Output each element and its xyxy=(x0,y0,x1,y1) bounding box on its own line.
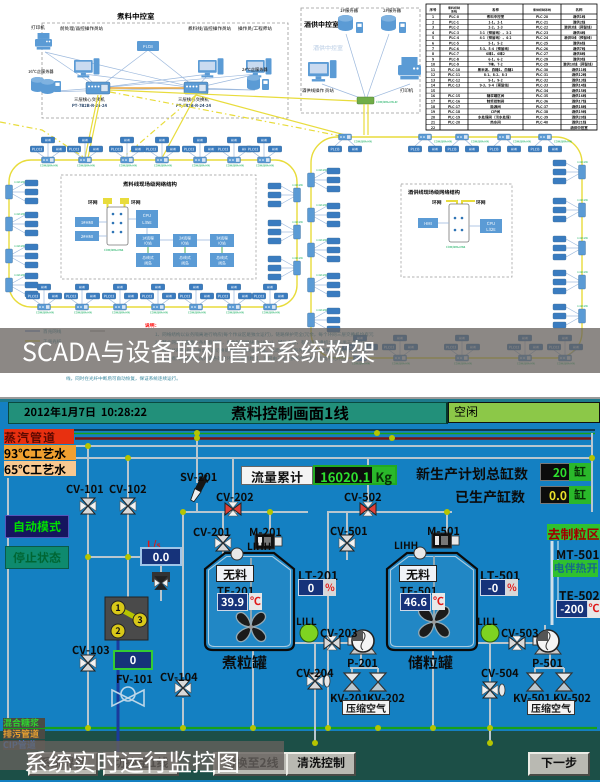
svg-text:1#服务器: 1#服务器 xyxy=(340,8,359,14)
svg-text:22: 22 xyxy=(431,126,435,131)
svg-text:COM-MN: COM-MN xyxy=(14,212,25,216)
svg-text:1#HMI: 1#HMI xyxy=(81,220,93,226)
svg-text:16℃企服务器: 16℃企服务器 xyxy=(28,69,54,75)
svg-text:总线式: 总线式 xyxy=(179,255,191,261)
svg-text:酒供20线: 酒供20线 xyxy=(572,115,587,120)
svg-text:19: 19 xyxy=(431,110,435,115)
svg-text:6味1、6味2: 6味1、6味2 xyxy=(486,52,505,57)
svg-text:IO站: IO站 xyxy=(218,241,226,247)
svg-text:PLC-11: PLC-11 xyxy=(448,73,460,78)
svg-text:线，同时在光纤中断后可自动恢复，保证系统连续运行。: 线，同时在光纤中断后可自动恢复，保证系统连续运行。 xyxy=(66,376,181,382)
svg-text:COM/BRA-MN: COM/BRA-MN xyxy=(226,311,244,315)
svg-text:酒供中控室: 酒供中控室 xyxy=(313,43,343,52)
svg-text:酒供线现场级网络结构: 酒供线现场级网络结构 xyxy=(408,189,460,196)
svg-text:HMI: HMI xyxy=(231,286,238,291)
svg-text:HMI: HMI xyxy=(159,139,166,144)
svg-text:PLCB: PLCB xyxy=(411,148,421,153)
svg-text:PLC-8: PLC-8 xyxy=(449,57,459,62)
svg-text:PLC-27: PLC-27 xyxy=(536,52,548,57)
svg-text:PLCB: PLCB xyxy=(490,148,500,153)
svg-text:HMI: HMI xyxy=(432,148,439,153)
svg-text:PT-7B2B-R-24-24: PT-7B2B-R-24-24 xyxy=(72,103,108,109)
svg-text:PLC-28: PLC-28 xyxy=(536,57,548,62)
svg-text:PLC-25: PLC-25 xyxy=(536,42,548,47)
svg-text:HMI: HMI xyxy=(424,221,432,227)
svg-text:PLC-7: PLC-7 xyxy=(449,52,459,57)
svg-text:21: 21 xyxy=(431,121,435,126)
svg-text:16: 16 xyxy=(431,94,435,99)
svg-text:PLC03: PLC03 xyxy=(66,295,77,300)
svg-text:COM-MN: COM-MN xyxy=(577,304,588,308)
svg-text:8-1、8-2、8-3: 8-1、8-2、8-3 xyxy=(484,73,507,78)
svg-text:HMI: HMI xyxy=(52,295,59,300)
svg-text:酒供5线（预留线）: 酒供5线（预留线） xyxy=(564,36,594,41)
svg-text:PLCB: PLCB xyxy=(448,148,458,153)
svg-text:环网: 环网 xyxy=(432,199,442,206)
svg-text:PLC-0: PLC-0 xyxy=(449,15,459,20)
svg-text:COM-MN: COM-MN xyxy=(292,183,303,187)
svg-text:PLC03: PLC03 xyxy=(104,295,115,300)
svg-text:名称: 名称 xyxy=(576,8,584,13)
svg-text:PLC-9: PLC-9 xyxy=(449,63,459,68)
svg-text:HMI: HMI xyxy=(82,139,89,144)
svg-text:COM/BRA-MN: COM/BRA-MN xyxy=(226,164,244,168)
svg-text:COM/BRA-MN: COM/BRA-MN xyxy=(256,164,274,168)
svg-text:1-1、2-1: 1-1、2-1 xyxy=(488,20,502,25)
svg-text:L35E: L35E xyxy=(142,220,152,226)
svg-text:3: 3 xyxy=(432,26,434,31)
svg-text:煮料中控室: 煮料中控室 xyxy=(117,11,155,22)
svg-text:HMI: HMI xyxy=(511,148,518,153)
svg-text:COM-MN: COM-MN xyxy=(577,198,588,202)
svg-text:2#HMI: 2#HMI xyxy=(81,234,93,240)
svg-text:COM-MN: COM-MN xyxy=(577,270,588,274)
svg-text:阀岛: 阀岛 xyxy=(181,261,189,267)
svg-text:煮料线/品控操作员站: 煮料线/品控操作员站 xyxy=(188,26,232,32)
svg-text:9: 9 xyxy=(432,57,434,62)
svg-text:COM-MN: COM-MN xyxy=(316,168,327,172)
svg-text:COM/BRA-MN: COM/BRA-MN xyxy=(192,164,210,168)
svg-text:COM/BRA-MN: COM/BRA-MN xyxy=(150,311,168,315)
svg-text:HMI: HMI xyxy=(128,295,135,300)
svg-text:酒供中控室: 酒供中控室 xyxy=(304,20,339,30)
svg-text:2-2、2-3: 2-2、2-3 xyxy=(488,26,502,31)
svg-text:酒供13线: 酒供13线 xyxy=(572,78,587,83)
svg-text:PLC-15: PLC-15 xyxy=(448,94,460,99)
svg-text:9-1、9-2: 9-1、9-2 xyxy=(488,78,502,83)
svg-text:名称: 名称 xyxy=(492,8,500,13)
svg-text:PLC-35: PLC-35 xyxy=(536,94,548,99)
svg-text:酒供8线: 酒供8线 xyxy=(573,52,586,57)
svg-text:PLC-39: PLC-39 xyxy=(536,115,548,120)
svg-text:9-3、9-4（预留线）: 9-3、9-4（预留线） xyxy=(480,84,512,89)
svg-text:COM-MN: COM-MN xyxy=(316,238,327,242)
svg-text:阀岛: 阀岛 xyxy=(218,261,226,267)
svg-text:COM/BRA-MN: COM/BRA-MN xyxy=(36,311,54,315)
svg-text:COM/BRA-MN: COM/BRA-MN xyxy=(154,164,172,168)
svg-text:总线式: 总线式 xyxy=(142,255,154,261)
svg-text:PLC-1: PLC-1 xyxy=(449,20,459,25)
svg-text:PLC03: PLC03 xyxy=(184,148,195,153)
svg-text:PLC-4: PLC-4 xyxy=(449,36,459,41)
svg-text:酒供线操作 员站: 酒供线操作 员站 xyxy=(302,88,334,94)
svg-text:酒供中控室: 酒供中控室 xyxy=(570,125,588,131)
svg-text:酒供6线: 酒供6线 xyxy=(573,42,586,47)
svg-text:打印机: 打印机 xyxy=(400,88,414,94)
svg-text:酒供16线: 酒供16线 xyxy=(572,94,587,99)
svg-text:17: 17 xyxy=(431,100,435,105)
svg-text:COM/BRA-MN: COM/BRA-MN xyxy=(262,311,280,315)
svg-text:PLC-20: PLC-20 xyxy=(448,121,460,126)
svg-text:酒供14线: 酒供14线 xyxy=(572,84,587,89)
svg-text:PLC-36: PLC-36 xyxy=(536,100,548,105)
svg-text:HMI: HMI xyxy=(93,148,100,153)
svg-text:PLCB: PLCB xyxy=(331,148,341,153)
svg-text:HMI: HMI xyxy=(56,148,63,153)
svg-text:14: 14 xyxy=(431,84,435,89)
svg-text:COM-MN: COM-MN xyxy=(14,273,25,277)
svg-text:COM/BRA-MN: COM/BRA-MN xyxy=(119,164,137,168)
svg-text:酒供10线（预留线）: 酒供10线（预留线） xyxy=(563,63,595,68)
svg-text:HMI: HMI xyxy=(352,148,359,153)
svg-text:12: 12 xyxy=(431,73,435,78)
svg-text:PLC03: PLC03 xyxy=(254,295,265,300)
svg-text:COM/BRA-MN4: COM/BRA-MN4 xyxy=(446,245,466,249)
svg-text:HMI: HMI xyxy=(193,286,200,291)
svg-text:打印机: 打印机 xyxy=(31,25,45,31)
svg-text:COM/BRA-MN: COM/BRA-MN xyxy=(554,140,572,144)
svg-text:4-1（预留线）、4-2: 4-1（预留线）、4-2 xyxy=(480,36,512,41)
svg-text:L32E: L32E xyxy=(486,227,496,233)
svg-text:IO站: IO站 xyxy=(144,241,152,247)
svg-text:PLC-22: PLC-22 xyxy=(536,26,548,31)
svg-text:HMI: HMI xyxy=(278,295,285,300)
svg-text:PLCB: PLCB xyxy=(143,44,153,50)
svg-text:COM/BRA-MN-4F: COM/BRA-MN-4F xyxy=(376,100,398,104)
svg-text:煮料线现场级网络结构: 煮料线现场级网络结构 xyxy=(123,180,178,188)
svg-text:HMI: HMI xyxy=(197,139,204,144)
svg-text:序号: 序号 xyxy=(430,8,438,13)
svg-text:COM-MN: COM-MN xyxy=(316,273,327,277)
svg-text:2: 2 xyxy=(432,20,434,25)
svg-text:阀岛: 阀岛 xyxy=(144,261,152,267)
svg-text:COM/BRA-MN: COM/BRA-MN xyxy=(74,311,92,315)
svg-text:2: 2 xyxy=(115,624,120,637)
svg-text:6: 6 xyxy=(432,42,434,47)
svg-text:IO站: IO站 xyxy=(181,241,189,247)
svg-text:PLCB: PLCB xyxy=(531,148,541,153)
svg-text:HMI: HMI xyxy=(552,148,559,153)
svg-text:PLC-21: PLC-21 xyxy=(536,20,548,25)
svg-text:环网: 环网 xyxy=(88,199,98,206)
svg-text:COM/BRA-MN4: COM/BRA-MN4 xyxy=(104,248,124,252)
svg-text:PLC03: PLC03 xyxy=(180,295,191,300)
svg-text:1: 1 xyxy=(432,15,434,20)
svg-text:COM-MN: COM-MN xyxy=(14,244,25,248)
svg-text:2#℃企服务器: 2#℃企服务器 xyxy=(242,67,268,73)
svg-text:COM-MN: COM-MN xyxy=(292,256,303,260)
svg-text:PLC03: PLC03 xyxy=(111,148,122,153)
svg-text:COM/BRA-MN: COM/BRA-MN xyxy=(40,164,58,168)
svg-text:HMI: HMI xyxy=(204,295,211,300)
svg-text:5: 5 xyxy=(432,36,434,41)
svg-text:6-1、6-2: 6-1、6-2 xyxy=(488,57,502,62)
svg-text:PLC-40: PLC-40 xyxy=(536,121,548,126)
svg-text:COM/BRA-MN: COM/BRA-MN xyxy=(112,311,130,315)
svg-text:HMI: HMI xyxy=(166,295,173,300)
svg-text:PLC03: PLC03 xyxy=(146,148,157,153)
svg-text:总线式: 总线式 xyxy=(216,255,228,261)
svg-text:PLC-18: PLC-18 xyxy=(448,110,460,115)
svg-text:CIP间: CIP间 xyxy=(491,110,501,115)
svg-text:HMI: HMI xyxy=(45,139,52,144)
svg-text:COM-MN: COM-MN xyxy=(577,236,588,240)
svg-text:PLC-33: PLC-33 xyxy=(536,84,548,89)
svg-text:PLC-2: PLC-2 xyxy=(449,26,459,31)
svg-text:HMI: HMI xyxy=(124,139,131,144)
svg-text:HMI: HMI xyxy=(231,139,238,144)
svg-text:CPU: CPU xyxy=(143,213,151,219)
svg-text:PLC03: PLC03 xyxy=(142,295,153,300)
svg-text:HMI: HMI xyxy=(135,148,142,153)
svg-text:PLC-19: PLC-19 xyxy=(448,115,460,120)
svg-text:系统: 系统 xyxy=(451,10,457,14)
svg-text:20: 20 xyxy=(431,115,435,120)
svg-text:HMI: HMI xyxy=(170,148,177,153)
svg-text:COM-MN: COM-MN xyxy=(316,203,327,207)
svg-text:PLC03: PLC03 xyxy=(28,295,39,300)
svg-text:1: 1 xyxy=(115,601,120,614)
svg-text:COM/BRA-MN: COM/BRA-MN xyxy=(188,311,206,315)
svg-text:COM-MN: COM-MN xyxy=(577,160,588,164)
svg-text:HMI: HMI xyxy=(242,295,249,300)
svg-text:水处理间（污水处理）: 水处理间（污水处理） xyxy=(478,115,513,120)
svg-text:COM/BRA-MN: COM/BRA-MN xyxy=(513,140,531,144)
svg-text:HMI: HMI xyxy=(469,148,476,153)
svg-text:COM/BRA-MN: COM/BRA-MN xyxy=(434,140,452,144)
svg-text:2#服务器: 2#服务器 xyxy=(383,8,402,14)
svg-text:PLC-29: PLC-29 xyxy=(536,63,548,68)
svg-text:PLC-31: PLC-31 xyxy=(536,73,548,78)
svg-text:酒供17线: 酒供17线 xyxy=(572,100,587,105)
svg-text:PLC03: PLC03 xyxy=(69,148,80,153)
svg-text:前处理/品控操作员站: 前处理/品控操作员站 xyxy=(60,26,104,32)
svg-text:PLC-13: PLC-13 xyxy=(448,84,460,89)
svg-text:PLC-16: PLC-16 xyxy=(448,100,460,105)
svg-text:操作员/工程师站: 操作员/工程师站 xyxy=(238,26,272,32)
svg-text:PLC-12: PLC-12 xyxy=(448,78,460,83)
svg-text:酒供1线: 酒供1线 xyxy=(573,15,586,20)
svg-text:热水间: 热水间 xyxy=(490,121,501,126)
svg-text:煮料中控室: 煮料中控室 xyxy=(487,14,505,20)
svg-text:PLC03: PLC03 xyxy=(32,148,43,153)
svg-text:环网: 环网 xyxy=(131,199,141,206)
svg-text:HMI: HMI xyxy=(272,148,279,153)
svg-text:10: 10 xyxy=(431,63,435,68)
svg-text:PLC-5: PLC-5 xyxy=(449,42,459,47)
svg-text:HMI: HMI xyxy=(117,286,124,291)
svg-text:环网: 环网 xyxy=(476,199,486,206)
svg-text:8: 8 xyxy=(432,52,434,57)
svg-text:酒供19线: 酒供19线 xyxy=(572,110,587,115)
svg-text:酒供3线（预留线）: 酒供3线（预留线） xyxy=(564,26,594,31)
svg-text:HMI: HMI xyxy=(267,286,274,291)
svg-text:糖浆罐区间: 糖浆罐区间 xyxy=(487,94,505,99)
svg-text:PLC-20: PLC-20 xyxy=(536,15,548,20)
svg-text:PLC-38: PLC-38 xyxy=(536,110,548,115)
svg-text:PLC-32: PLC-32 xyxy=(536,78,548,83)
svg-text:COM-MN: COM-MN xyxy=(292,220,303,224)
svg-text:PLC-24: PLC-24 xyxy=(536,36,548,41)
svg-text:酒供12线: 酒供12线 xyxy=(572,73,587,78)
svg-text:酒供9线: 酒供9线 xyxy=(573,57,586,62)
svg-text:HMI: HMI xyxy=(90,295,97,300)
svg-text:5-1、5-2: 5-1、5-2 xyxy=(488,42,502,47)
svg-text:PLC03: PLC03 xyxy=(218,148,229,153)
svg-text:COM/BRA-MN: COM/BRA-MN xyxy=(354,140,372,144)
svg-text:PLC03: PLC03 xyxy=(248,148,259,153)
svg-text:HMI: HMI xyxy=(79,286,86,291)
svg-text:13: 13 xyxy=(431,78,435,83)
svg-text:酒供2线: 酒供2线 xyxy=(573,20,586,25)
svg-text:酒供21线: 酒供21线 xyxy=(572,121,587,126)
svg-text:HMI: HMI xyxy=(41,286,48,291)
svg-text:COM-MN: COM-MN xyxy=(14,180,25,184)
svg-text:HMI: HMI xyxy=(208,148,215,153)
svg-text:制浆控制间: 制浆控制间 xyxy=(487,100,505,105)
svg-text:HMI: HMI xyxy=(261,139,268,144)
svg-text:3: 3 xyxy=(137,613,142,626)
svg-text:7味、7-2: 7味、7-2 xyxy=(488,63,503,68)
svg-text:HMI: HMI xyxy=(155,286,162,291)
svg-text:煮供控制系统: 煮供控制系统 xyxy=(533,8,551,12)
svg-text:PLC03: PLC03 xyxy=(218,295,229,300)
svg-text:COM/BRA-MN: COM/BRA-MN xyxy=(77,164,95,168)
svg-text:COM/BRA-MN: COM/BRA-MN xyxy=(471,140,489,144)
svg-text:COM-MN: COM-MN xyxy=(316,308,327,312)
